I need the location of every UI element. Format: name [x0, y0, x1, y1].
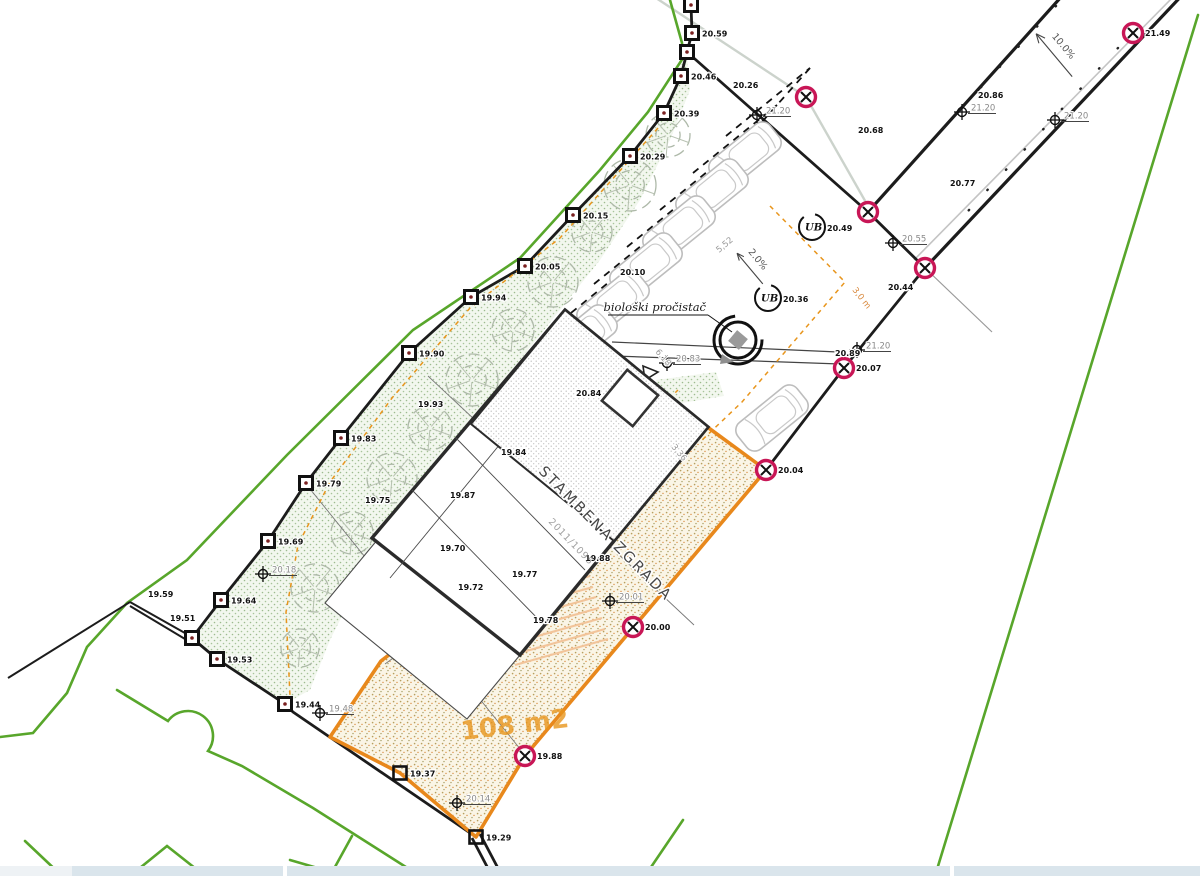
survey-elevation: 19.44: [295, 701, 321, 710]
survey-elevation: 19.69: [278, 538, 304, 547]
spot-elevation: 19.77: [512, 570, 537, 579]
ub-label: UB: [761, 294, 778, 305]
spot-elevation: 19.93: [418, 400, 443, 409]
window-bottom-bar: [0, 866, 1200, 876]
spot-elevation: 19.70: [440, 544, 466, 553]
utility-point-icon: [797, 88, 816, 107]
survey-elevation: 20.05: [535, 263, 561, 272]
survey-elevation: 19.53: [227, 656, 252, 665]
spot-elevation: 19.51: [170, 614, 196, 623]
survey-elevation: 19.94: [481, 294, 507, 303]
benchmark-elevation: 19.48: [329, 705, 353, 715]
utility-point-icon: [859, 203, 878, 222]
survey-elevation: 20.39: [674, 110, 700, 119]
survey-elevation: 19.79: [316, 480, 342, 489]
spot-elevation: 20.44: [888, 283, 914, 292]
survey-marker: [685, 0, 698, 12]
survey-elevation: 20.59: [702, 30, 728, 39]
survey-marker: [186, 632, 199, 645]
ub-elevation: 20.36: [783, 295, 809, 304]
survey-elevation: 19.64: [231, 597, 257, 606]
survey-elevation: 19.83: [351, 435, 376, 444]
spot-elevation: 19.84: [501, 448, 527, 457]
spot-elevation: 19.75: [365, 496, 391, 505]
bottom-bar[interactable]: [0, 866, 1200, 876]
benchmark-elevation: 20.18: [272, 566, 296, 576]
benchmark-elevation: 20.01: [619, 593, 643, 603]
spot-elevation: 20.89: [835, 349, 861, 358]
survey-elevation: 19.29: [486, 834, 512, 843]
utility-elevation: 20.00: [645, 623, 671, 632]
spot-elevation: 20.68: [858, 126, 884, 135]
benchmark-elevation: 21.20: [1064, 112, 1088, 122]
benchmark-elevation: 21.20: [766, 107, 790, 117]
bottom-bar-separator: [950, 866, 954, 876]
utility-point-icon: [916, 259, 935, 278]
spot-elevation: 19.87: [450, 491, 475, 500]
spot-elevation: 19.72: [458, 583, 483, 592]
utility-elevation: 20.07: [856, 364, 881, 373]
spot-elevation: 20.86: [978, 91, 1004, 100]
ub-elevation: 20.49: [827, 224, 853, 233]
survey-elevation: 20.15: [583, 212, 609, 221]
spot-elevation: 19.78: [533, 616, 559, 625]
benchmark-elevation: 20.83: [676, 355, 700, 365]
utility-elevation: 21.49: [1145, 29, 1171, 38]
survey-elevation: 20.46: [691, 73, 717, 82]
utility-elevation: 19.88: [537, 752, 563, 761]
bottom-bar-left-segment: [0, 866, 72, 876]
ub-label: UB: [805, 223, 822, 234]
survey-elevation: 19.37: [410, 770, 435, 779]
site-plan-window: 10.0%: [0, 0, 1200, 876]
survey-marker: [681, 46, 694, 59]
benchmark-elevation: 21.20: [971, 104, 995, 114]
benchmark-elevation: 20.55: [902, 235, 926, 245]
spot-elevation: 20.26: [733, 81, 759, 90]
benchmark-elevation: 21.20: [866, 342, 890, 352]
spot-elevation: 19.59: [148, 590, 174, 599]
bottom-bar-separator: [283, 866, 287, 876]
survey-elevation: 20.29: [640, 153, 666, 162]
purifier-label: biološki pročistač: [604, 300, 707, 314]
utility-elevation: 20.04: [778, 466, 804, 475]
spot-elevation: 20.77: [950, 179, 975, 188]
site-plan-canvas[interactable]: 10.0%: [0, 0, 1200, 876]
survey-elevation: 19.90: [419, 350, 445, 359]
spot-elevation: 20.10: [620, 268, 646, 277]
benchmark-elevation: 20.14: [466, 795, 490, 805]
spot-elevation: 20.84: [576, 389, 602, 398]
